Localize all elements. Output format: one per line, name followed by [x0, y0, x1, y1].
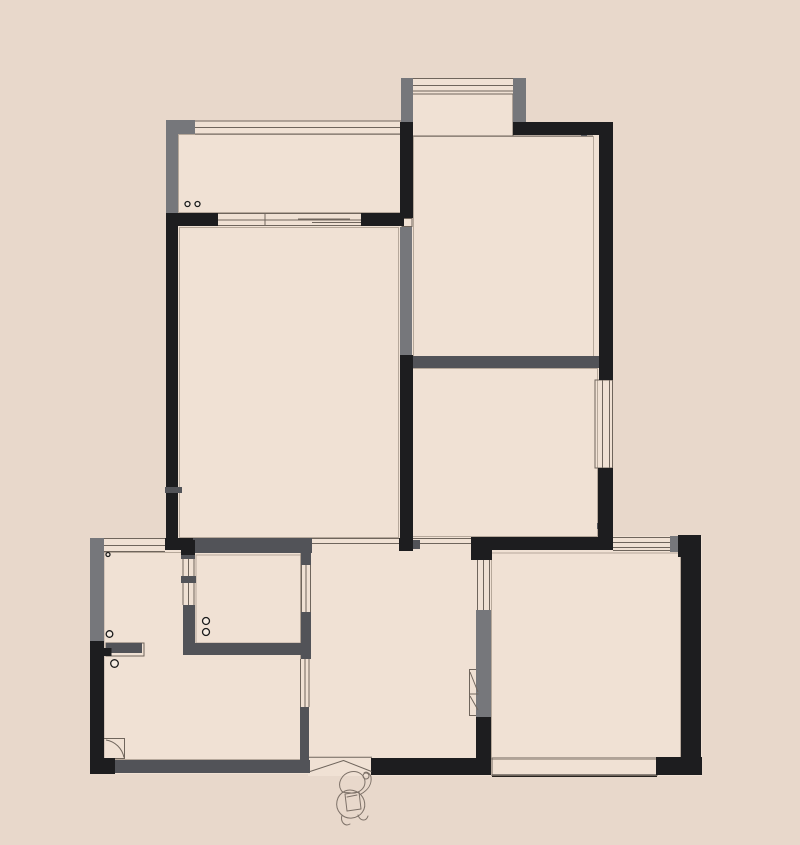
- wall-segment-gray: [476, 610, 491, 717]
- person-sketch-path: [347, 795, 357, 797]
- person-sketch-path: [345, 792, 361, 811]
- room-floor: [166, 213, 412, 551]
- wall-segment-dark-gray: [193, 538, 312, 553]
- wall-segment-dark-gray: [183, 643, 305, 655]
- wall-segment-gray: [401, 78, 413, 122]
- room-floor: [308, 537, 492, 776]
- wall-segment-black: [166, 493, 178, 538]
- wall-segment-dark-gray: [301, 553, 311, 565]
- hinge-circle-symbol: [106, 631, 113, 638]
- wall-segment-dark-gray: [183, 605, 195, 655]
- wall-segment-dark-gray: [108, 760, 310, 773]
- wall-segment-gray: [513, 78, 526, 122]
- wall-segment-black: [400, 355, 413, 545]
- wall-segment-gray: [400, 227, 412, 355]
- wall-segment-black: [166, 213, 218, 226]
- room-floor: [178, 121, 402, 226]
- person-sketch-path: [342, 815, 350, 825]
- hinge-circle-symbol: [185, 202, 190, 207]
- wall-segment-black: [599, 122, 613, 380]
- wall-segment-black: [598, 468, 613, 538]
- wall-segment-dark-gray: [412, 540, 420, 549]
- wall-segment-dark-gray: [412, 356, 599, 368]
- floor-plan-canvas: [0, 0, 800, 845]
- wall-segment-black: [166, 213, 178, 487]
- wall-segment-gray: [90, 538, 104, 641]
- person-figure-sketch: [337, 772, 371, 825]
- wall-segment-black: [361, 213, 404, 226]
- hinge-circle-symbol: [203, 618, 210, 625]
- wall-segment-black: [90, 641, 104, 774]
- wall-segment-black: [371, 758, 482, 775]
- wall-segment-black: [513, 122, 613, 135]
- wall-segment-black: [656, 757, 702, 775]
- room-floor: [402, 122, 613, 368]
- wall-segment-black: [181, 540, 195, 555]
- hinge-circle-symbol: [111, 660, 119, 668]
- room-floor: [399, 356, 613, 551]
- wall-segment-black: [104, 648, 112, 656]
- floor-plan-page: [0, 0, 800, 845]
- room-floor: [471, 536, 702, 776]
- wall-segment-gray: [166, 120, 178, 213]
- wall-segment-dark-gray: [300, 707, 309, 760]
- hinge-circle-symbol: [203, 629, 210, 636]
- wall-segment-black: [471, 537, 613, 550]
- wall-segment-black: [90, 758, 115, 774]
- wall-segment-black: [399, 538, 413, 551]
- wall-segment-dark-gray: [165, 487, 182, 493]
- wall-segment-dark-gray: [181, 576, 196, 583]
- wall-segment-black: [681, 535, 701, 774]
- wall-segment-black: [400, 122, 413, 218]
- hinge-circle-symbol: [106, 553, 110, 557]
- wall-segment-black: [471, 537, 492, 560]
- hinge-circle-symbol: [195, 202, 200, 207]
